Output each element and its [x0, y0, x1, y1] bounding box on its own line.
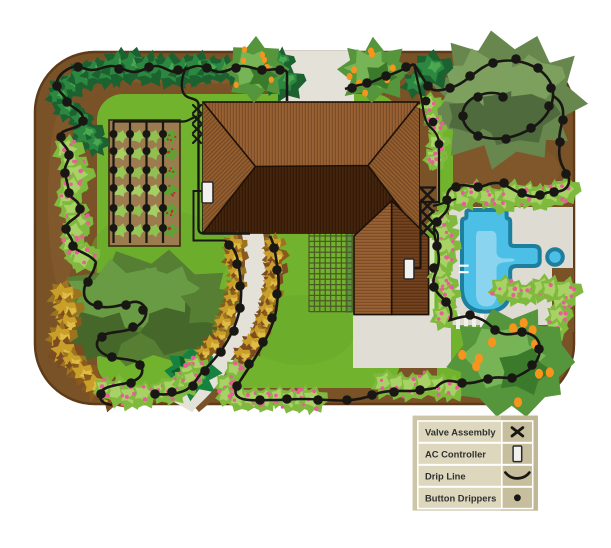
svg-text:AC Controller: AC Controller [425, 448, 486, 459]
svg-text:Button Drippers: Button Drippers [425, 492, 496, 503]
svg-text:Drip Line: Drip Line [425, 470, 466, 481]
svg-text:Valve Assembly: Valve Assembly [425, 426, 496, 437]
